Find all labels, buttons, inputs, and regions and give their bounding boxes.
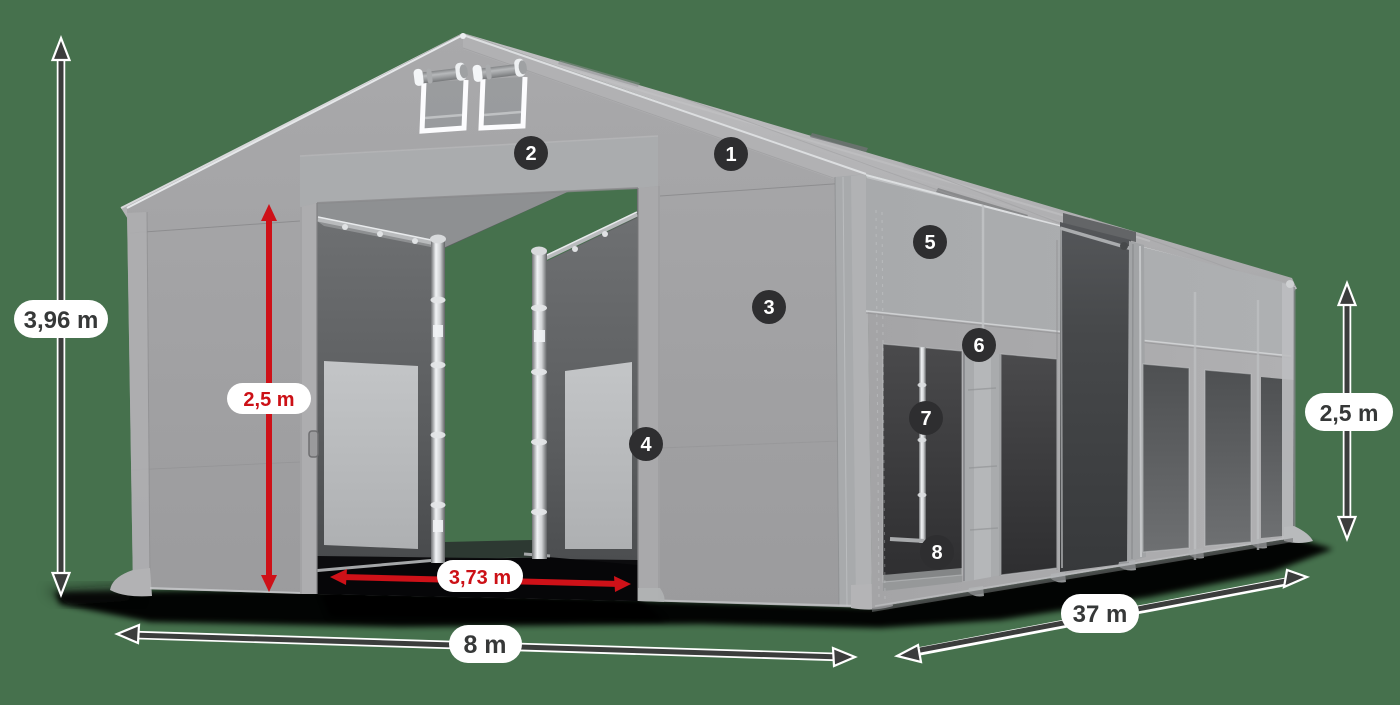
svg-text:1: 1 [725,144,736,166]
svg-text:2: 2 [525,143,536,165]
svg-text:6: 6 [973,335,984,357]
svg-text:4: 4 [640,434,652,456]
svg-text:3,73 m: 3,73 m [449,567,511,589]
svg-text:3,96 m: 3,96 m [24,307,99,334]
svg-text:8 m: 8 m [463,631,506,659]
svg-text:7: 7 [920,408,931,430]
svg-text:2,5 m: 2,5 m [243,389,294,411]
svg-text:2,5 m: 2,5 m [1320,400,1379,426]
svg-text:37 m: 37 m [1073,601,1128,628]
svg-text:5: 5 [924,232,935,254]
svg-text:8: 8 [931,542,942,564]
svg-text:3: 3 [763,297,774,319]
